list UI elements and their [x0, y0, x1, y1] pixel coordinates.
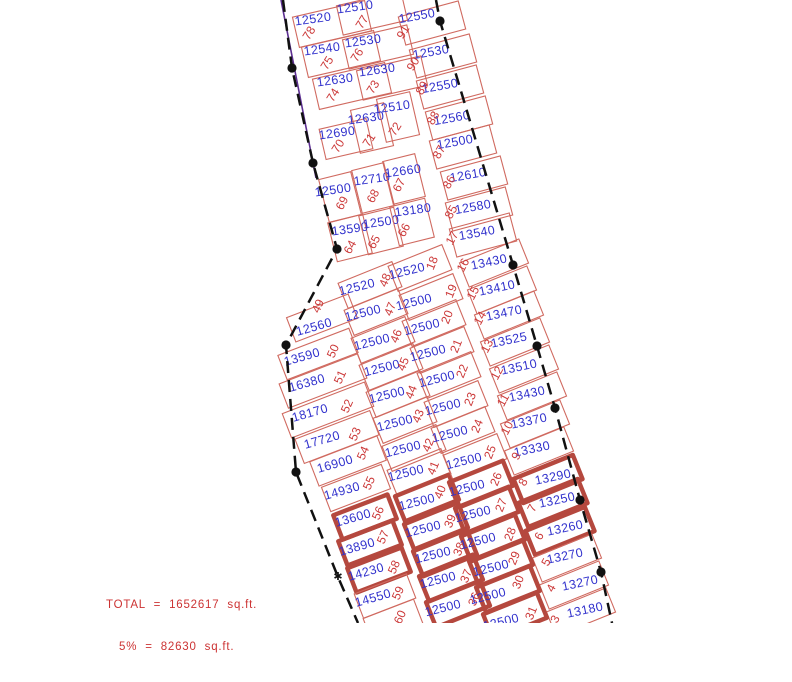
lot-number-label-68: 68: [364, 187, 383, 206]
lot-sqft-label-85: 12580: [454, 197, 493, 217]
lot-number-label-22: 22: [453, 362, 471, 380]
lots-layer: 1252078125407512630741269070126307112510…: [278, 0, 616, 623]
lot-number-label-3: 3: [547, 612, 563, 623]
plat-drawing-canvas: 1252078125407512630741269070126307112510…: [0, 0, 792, 623]
lot-sqft-label-72: 12510: [373, 98, 411, 117]
lot-number-label-50: 50: [324, 342, 342, 360]
lot-sqft-label-14: 13470: [485, 302, 524, 323]
lot-sqft-label-75: 12540: [303, 40, 341, 59]
left-boundary-vertex-dot-1: [308, 158, 317, 167]
lot-sqft-label-54: 16900: [315, 452, 354, 476]
lot-number-label-41: 41: [424, 459, 442, 477]
lot-number-label-54: 54: [354, 444, 372, 462]
five-percent-area-text: 5% = 82630 sq.ft.: [106, 640, 257, 654]
lot-sqft-label-44: 12500: [367, 384, 406, 406]
right-boundary-vertex-dot-1: [508, 260, 517, 269]
left-boundary-vertex-dot-4: [291, 467, 300, 476]
lot-sqft-label-66: 13180: [394, 201, 432, 220]
lot-sqft-label-67: 12660: [384, 162, 422, 181]
lot-number-label-31: 31: [522, 604, 540, 622]
lot-number-label-25: 25: [481, 443, 499, 461]
lot-sqft-label-13: 13525: [490, 329, 529, 350]
lot-sqft-label-41: 12500: [386, 462, 425, 484]
total-area-text: TOTAL = 1652617 sq.ft.: [106, 598, 257, 612]
lot-sqft-label-73: 12630: [358, 61, 396, 80]
lot-number-label-6: 6: [531, 529, 547, 542]
lot-number-label-73: 73: [364, 77, 383, 96]
lot-number-label-44: 44: [402, 383, 420, 401]
survey-star-marker: ✱: [333, 571, 342, 583]
lot-sqft-label-4: 13270: [561, 572, 600, 593]
lot-number-label-27: 27: [492, 496, 510, 514]
lot-number-label-23: 23: [461, 390, 479, 408]
left-boundary-vertex-dot-2: [332, 244, 341, 253]
lot-sqft-label-16: 13430: [470, 251, 509, 272]
lot-sqft-label-77: 12510: [336, 0, 374, 16]
lot-sqft-label-11: 13430: [508, 383, 547, 404]
lot-number-label-55: 55: [360, 474, 378, 492]
lot-number-label-71: 71: [360, 130, 379, 149]
right-boundary-vertex-dot-4: [575, 495, 584, 504]
lot-sqft-label-3: 13180: [566, 599, 605, 620]
lot-number-label-52: 52: [338, 397, 356, 415]
lot-sqft-label-10: 13370: [510, 410, 549, 431]
area-summary: TOTAL = 1652617 sq.ft. 5% = 82630 sq.ft.: [106, 570, 257, 682]
lot-number-label-18: 18: [423, 254, 441, 272]
right-boundary-vertex-dot-3: [550, 403, 559, 412]
right-boundary-vertex-dot-2: [532, 341, 541, 350]
lot-number-label-49: 49: [309, 297, 327, 315]
lot-sqft-label-74: 12630: [316, 71, 354, 90]
lot-number-label-24: 24: [468, 417, 486, 435]
lot-sqft-label-56: 13600: [333, 506, 372, 530]
lot-number-label-58: 58: [385, 558, 403, 576]
lot-sqft-label-78: 12520: [294, 10, 332, 29]
lot-number-label-77: 77: [353, 12, 372, 31]
lot-number-label-20: 20: [438, 308, 456, 326]
lot-sqft-label-17: 13540: [458, 223, 497, 243]
lot-sqft-label-23: 12500: [423, 396, 462, 418]
right-boundary-vertex-dot-0: [435, 16, 444, 25]
lot-number-label-60: 60: [391, 608, 409, 623]
lot-sqft-label-47: 12500: [343, 302, 382, 324]
lot-number-label-4: 4: [543, 581, 559, 594]
lot-number-label-53: 53: [346, 425, 364, 443]
lot-number-label-7: 7: [524, 501, 540, 514]
lot-sqft-label-51: 16380: [287, 371, 326, 395]
lot-number-label-26: 26: [487, 470, 505, 488]
lot-number-label-64: 64: [341, 238, 360, 257]
lot-sqft-label-91: 12550: [398, 6, 437, 26]
right-boundary-vertex-dot-5: [596, 567, 605, 576]
lot-sqft-label-48: 12520: [337, 276, 376, 298]
left-boundary-vertex-dot-3: [281, 340, 290, 349]
left-boundary-vertex-dot-0: [287, 63, 296, 72]
lot-number-label-21: 21: [447, 337, 465, 355]
subdivision-plat-map: 1252078125407512630741269070126307112510…: [0, 0, 792, 623]
lot-number-label-57: 57: [374, 528, 392, 546]
lot-number-label-51: 51: [331, 368, 349, 386]
lot-sqft-label-15: 13410: [478, 277, 517, 298]
lot-sqft-label-18: 12520: [387, 260, 426, 282]
lot-sqft-label-76: 12530: [344, 32, 382, 51]
